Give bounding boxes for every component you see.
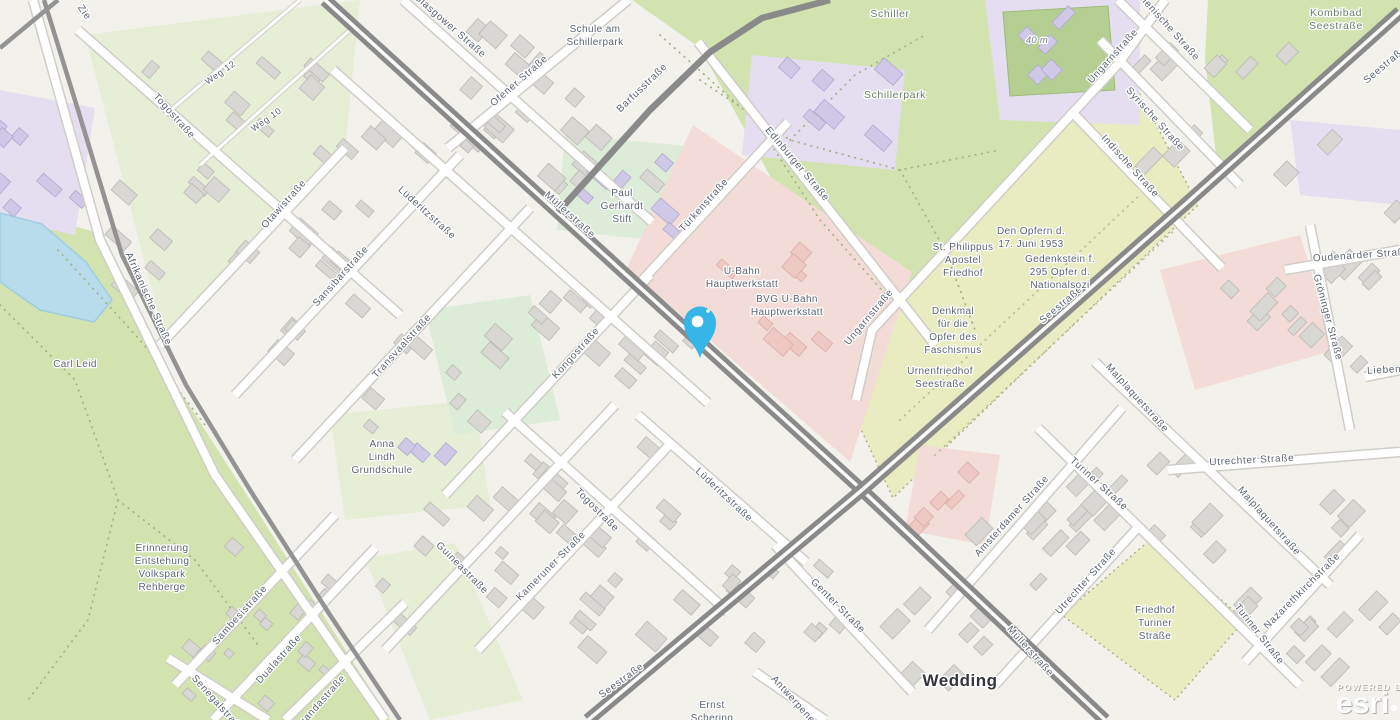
park-label: Schiller	[870, 8, 909, 20]
map-canvas[interactable]: ZieWeg 12Weg 10TogostraßeOtawistraßeGlas…	[0, 0, 1400, 720]
note-label: 40 m	[1026, 35, 1048, 46]
place-label: Wedding	[923, 671, 998, 690]
pin-hole	[692, 316, 704, 328]
park-label: KombibadSeestraße	[1309, 7, 1363, 32]
park-label: Schillerpark	[864, 89, 926, 101]
esri-logo-dot	[1391, 705, 1397, 711]
poi-label: FriedhofTurinerStraße	[1135, 605, 1175, 642]
pin-shine	[706, 309, 710, 313]
poi-label: Carl Leid	[53, 359, 97, 370]
poi-label: Gedenkstein f.295 Opfer d.Nationalsozi	[1025, 254, 1095, 291]
map-svg: ZieWeg 12Weg 10TogostraßeOtawistraßeGlas…	[0, 0, 1400, 720]
area-lavender-right-edge	[1290, 120, 1400, 205]
esri-logo-text: esri	[1336, 687, 1389, 720]
